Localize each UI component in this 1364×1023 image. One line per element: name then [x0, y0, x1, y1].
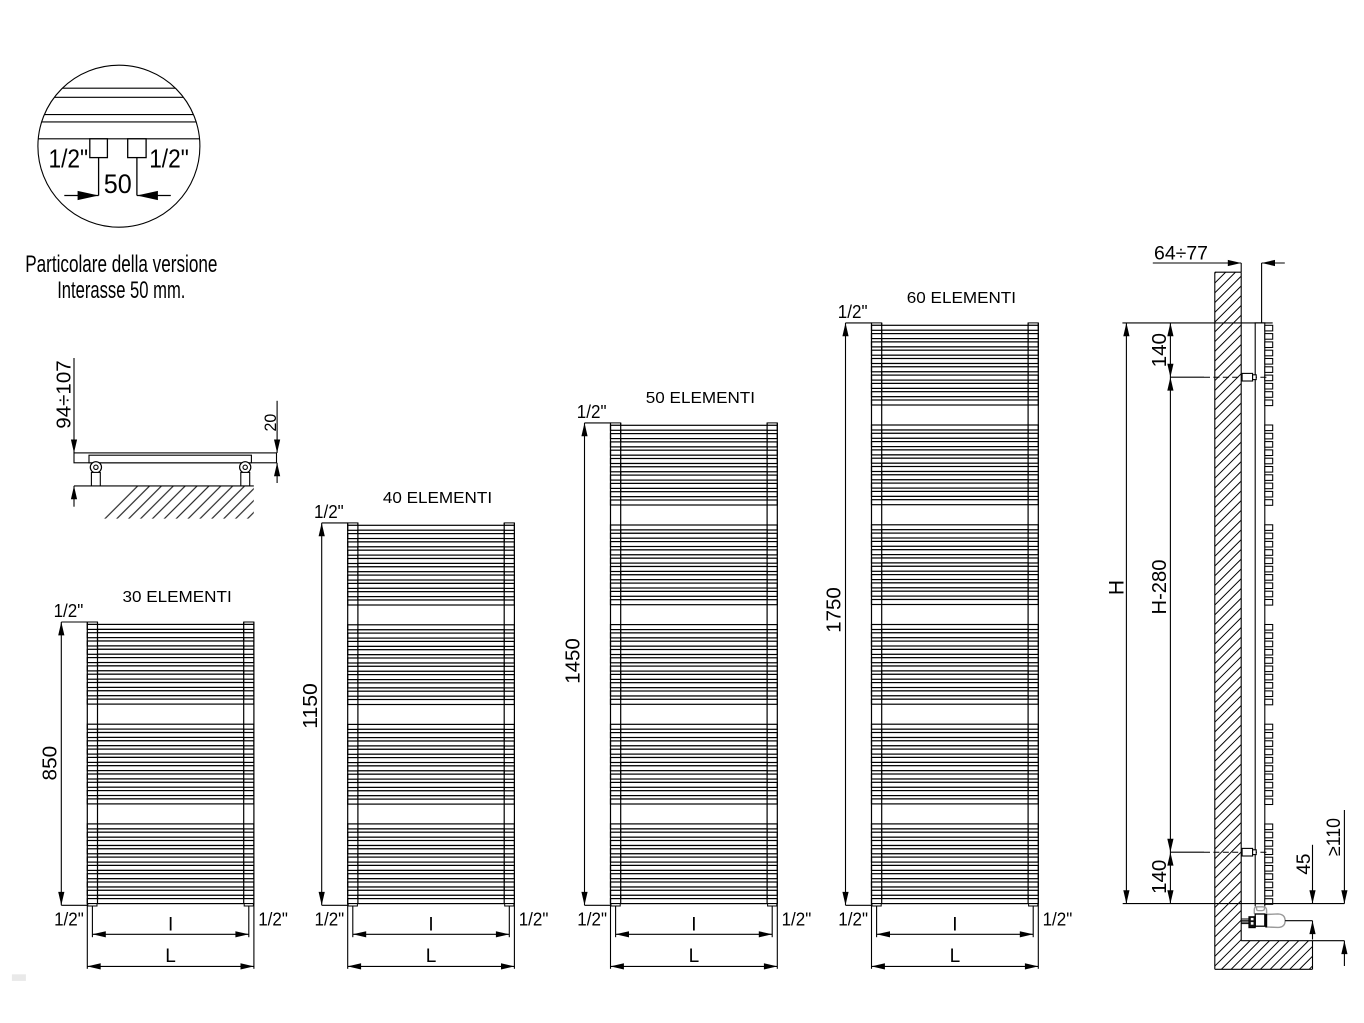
- svg-text:1/2": 1/2": [149, 143, 189, 173]
- svg-text:L: L: [165, 946, 176, 967]
- svg-text:L: L: [426, 946, 437, 967]
- svg-text:45: 45: [1294, 854, 1315, 875]
- svg-text:1/2": 1/2": [577, 910, 607, 930]
- svg-text:≥110: ≥110: [1324, 818, 1345, 856]
- svg-text:Interasse 50 mm.: Interasse 50 mm.: [57, 277, 185, 304]
- svg-text:60 ELEMENTI: 60 ELEMENTI: [907, 290, 1016, 307]
- svg-text:850: 850: [39, 746, 61, 781]
- svg-text:I: I: [168, 915, 173, 936]
- svg-text:1/2": 1/2": [1043, 910, 1073, 930]
- svg-text:1/2": 1/2": [782, 910, 812, 930]
- svg-text:1450: 1450: [563, 638, 585, 684]
- svg-text:Particolare della versione: Particolare della versione: [25, 251, 217, 278]
- svg-text:1/2": 1/2": [577, 402, 607, 422]
- svg-text:1/2": 1/2": [54, 601, 84, 621]
- svg-text:1/2": 1/2": [314, 502, 344, 522]
- svg-text:H: H: [1106, 580, 1129, 595]
- svg-text:20: 20: [262, 414, 280, 432]
- svg-text:140: 140: [1149, 860, 1171, 894]
- svg-text:1/2": 1/2": [838, 910, 868, 930]
- svg-text:I: I: [428, 915, 433, 936]
- svg-text:1/2": 1/2": [519, 910, 549, 930]
- svg-text:L: L: [950, 946, 961, 967]
- svg-text:1/2": 1/2": [838, 302, 868, 322]
- svg-text:30 ELEMENTI: 30 ELEMENTI: [123, 589, 232, 606]
- svg-text:50 ELEMENTI: 50 ELEMENTI: [646, 390, 755, 407]
- svg-text:140: 140: [1149, 333, 1171, 367]
- svg-text:1150: 1150: [300, 683, 322, 729]
- svg-text:64÷77: 64÷77: [1154, 243, 1208, 264]
- svg-text:1750: 1750: [824, 587, 846, 633]
- svg-text:I: I: [952, 915, 957, 936]
- svg-text:H-280: H-280: [1149, 560, 1171, 615]
- svg-text:94÷107: 94÷107: [54, 360, 76, 428]
- svg-text:L: L: [689, 946, 700, 967]
- svg-text:1/2": 1/2": [258, 910, 288, 930]
- svg-text:1/2": 1/2": [54, 910, 84, 930]
- svg-text:I: I: [691, 915, 696, 936]
- svg-text:1/2": 1/2": [315, 910, 345, 930]
- svg-text:50: 50: [104, 169, 132, 199]
- svg-text:40 ELEMENTI: 40 ELEMENTI: [383, 490, 492, 507]
- svg-text:1/2": 1/2": [49, 143, 89, 173]
